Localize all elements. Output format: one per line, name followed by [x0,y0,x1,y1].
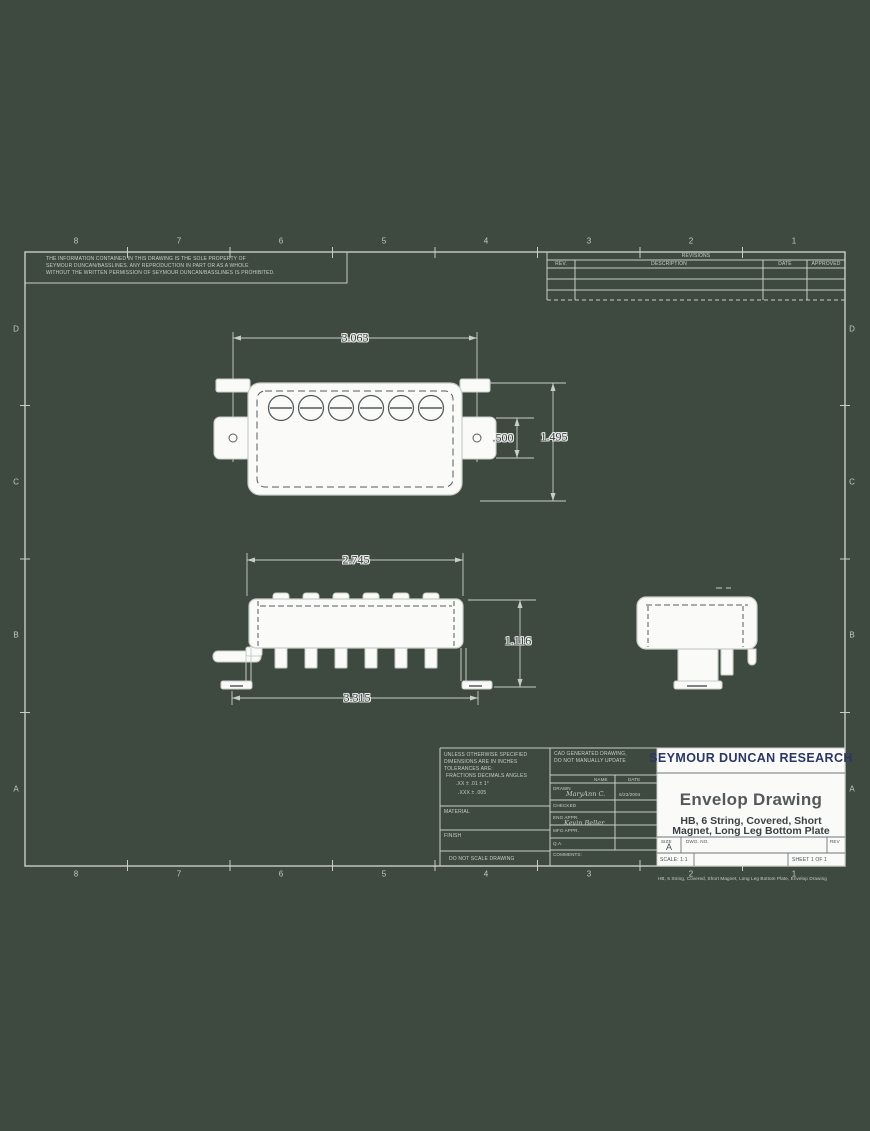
approval-row-label: MFG APPR. [553,828,579,833]
approval-row-label: COMMENTS: [553,852,582,857]
grid-row-label: D [849,325,855,334]
dim-top-view-width: 3.063 [342,331,369,346]
grid-row-label: A [13,785,18,794]
grid-row-label: B [13,631,18,640]
tolerance-line: .XX ± .01 ± 1° [456,781,489,787]
finish-label: FINISH [444,833,461,839]
proprietary-notice-line: SEYMOUR DUNCAN/BASSLINES. ANY REPRODUCTI… [46,263,249,269]
top-view [214,332,566,501]
approval-row-label: Q.A. [553,841,563,846]
grid-col-label: 5 [382,237,386,246]
grid-col-label: 7 [177,237,181,246]
tolerance-line: FRACTIONS DECIMALS ANGLES [446,773,527,779]
dim-side-view-leg-span: 3.315 [344,691,371,706]
tolerance-line: .XXX ± .005 [458,790,486,796]
tolerance-line: UNLESS OTHERWISE SPECIFIED [444,752,527,758]
drawing-linework [0,0,870,1131]
revision-col-approved: APPROVED [812,261,841,267]
side-view [213,553,536,705]
grid-col-label: 4 [484,237,488,246]
grid-col-label: 1 [792,237,796,246]
grid-row-label: C [849,478,855,487]
drawn-date: 6/23/2004 [619,792,640,797]
dim-side-view-height: 1.116 [505,634,532,649]
date-header: DATE [628,777,640,782]
material-label: MATERIAL [444,809,470,815]
cad-note-line: CAD GENERATED DRAWING, [554,751,627,757]
dim-top-view-tab: .500 [493,431,514,446]
cad-note-line: DO NOT MANUALLY UPDATE [554,758,626,764]
tolerance-line: TOLERANCES ARE: [444,766,493,772]
grid-col-label: 8 [74,237,78,246]
revision-col-description: DESCRIPTION [651,261,687,267]
grid-col-label: 7 [177,870,181,879]
grid-col-label: 5 [382,870,386,879]
eng-approver-name: Kevin Beller [564,819,604,827]
end-view [637,588,757,689]
grid-col-label: 6 [279,237,283,246]
do-not-scale-label: DO NOT SCALE DRAWING [449,856,515,862]
tolerance-line: DIMENSIONS ARE IN INCHES [444,759,517,765]
grid-row-label: D [13,325,19,334]
dim-top-view-height: 1.495 [541,430,568,445]
grid-row-label: B [849,631,854,640]
revision-col-rev: REV. [555,261,567,267]
grid-row-label: A [849,785,854,794]
dwg-no-label: DWG. NO. [686,839,709,844]
revision-col-date: DATE [778,261,792,267]
grid-col-label: 6 [279,870,283,879]
proprietary-notice-line: THE INFORMATION CONTAINED IN THIS DRAWIN… [46,256,246,262]
grid-col-label: 8 [74,870,78,879]
grid-col-label: 3 [587,237,591,246]
revision-table-title: REVISIONS [682,253,711,259]
grid-col-label: 4 [484,870,488,879]
size-value: A [666,842,672,852]
drawn-by-name: MaryAnn C. [566,790,605,798]
approval-row-label: CHECKED [553,803,576,808]
name-header: NAME [594,777,608,782]
drawing-title: Envelop Drawing [680,790,822,810]
grid-row-label: C [13,478,19,487]
drawing-sheet: 8 7 6 5 4 3 2 1 8 7 6 5 4 3 2 1 D C B A … [0,0,870,1131]
grid-col-label: 2 [689,237,693,246]
scale-text: SCALE: 1:1 [660,857,688,863]
rev-label: REV [830,839,840,844]
footer-note: HB, 6 String, Covered, Short Magnet, Lon… [658,876,827,881]
revision-table-lines [547,252,845,300]
sheet-text: SHEET 1 OF 1 [792,857,827,863]
company-name: SEYMOUR DUNCAN RESEARCH [649,751,853,765]
drawing-subtitle: Magnet, Long Leg Bottom Plate [672,825,830,837]
grid-col-label: 3 [587,870,591,879]
proprietary-notice-line: WITHOUT THE WRITTEN PERMISSION OF SEYMOU… [46,270,275,276]
dim-side-view-width: 2.745 [343,553,370,568]
